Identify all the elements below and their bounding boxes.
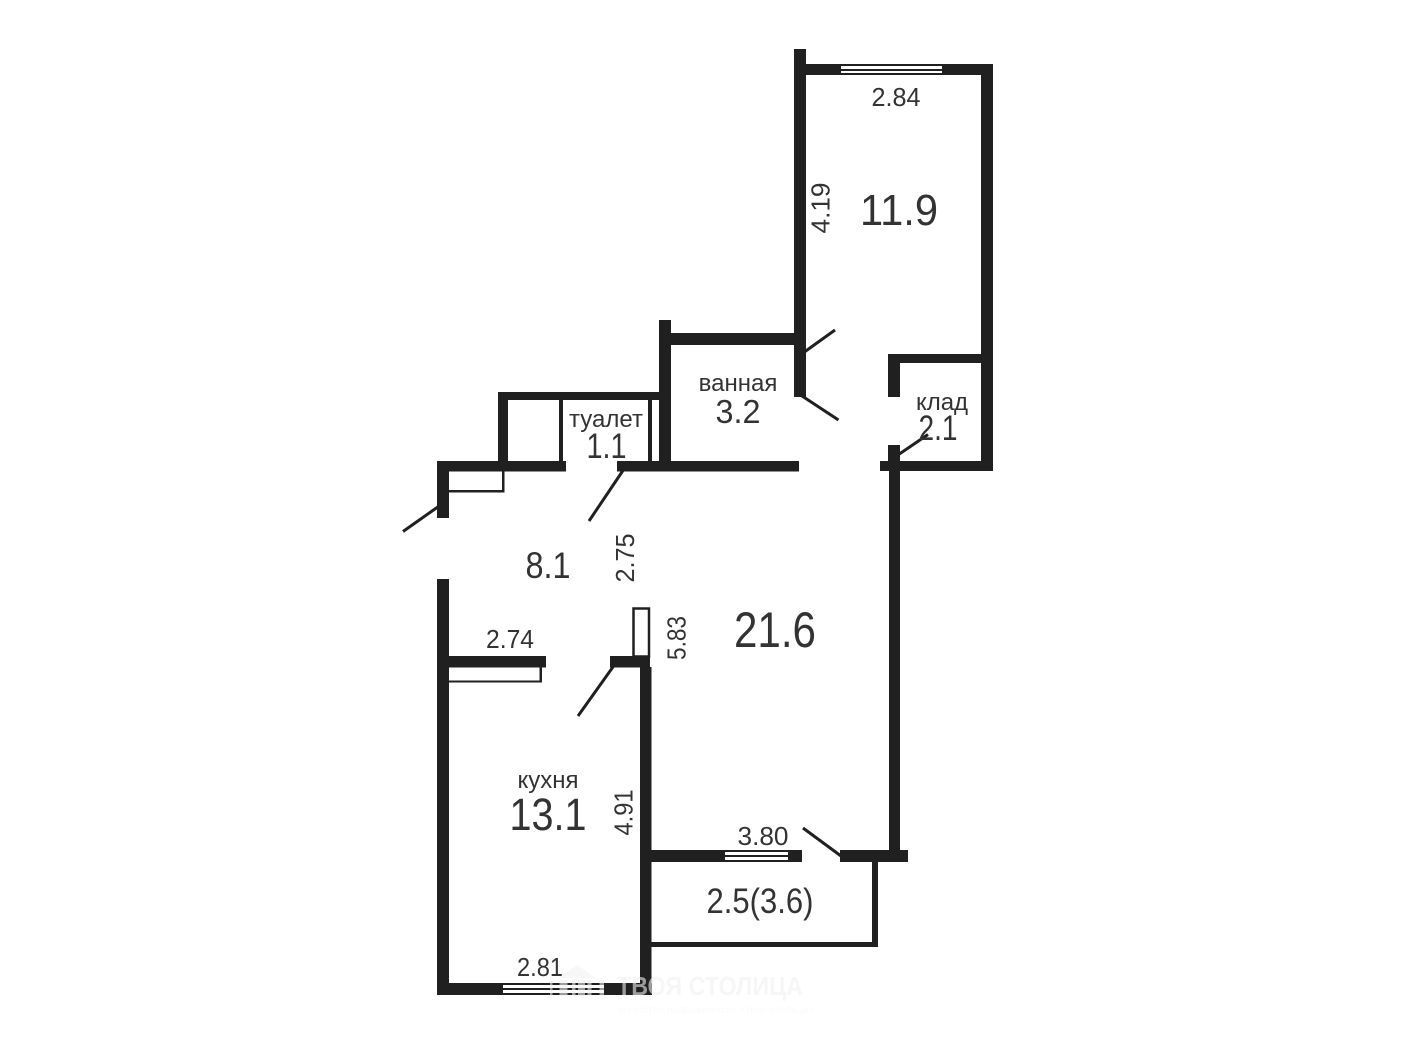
svg-text:1.1: 1.1	[587, 427, 627, 466]
svg-text:8.1: 8.1	[526, 545, 571, 586]
svg-text:2.81: 2.81	[517, 952, 563, 982]
svg-text:21.6: 21.6	[734, 602, 816, 658]
svg-text:ТВОЯ СТОЛИЦА: ТВОЯ СТОЛИЦА	[617, 973, 803, 1001]
svg-text:11.9: 11.9	[860, 186, 938, 235]
svg-text:агентство недвижимости «Твоя с: агентство недвижимости «Твоя столица»	[618, 1004, 814, 1016]
svg-text:5.83: 5.83	[661, 616, 691, 660]
svg-text:13.1: 13.1	[510, 789, 587, 840]
svg-text:3.80: 3.80	[738, 821, 789, 851]
svg-text:4.91: 4.91	[608, 790, 638, 836]
svg-text:2.5(3.6): 2.5(3.6)	[707, 882, 814, 921]
svg-text:2.75: 2.75	[610, 534, 640, 583]
svg-text:4.19: 4.19	[806, 183, 836, 234]
svg-text:3.2: 3.2	[716, 393, 761, 430]
svg-text:2.74: 2.74	[486, 624, 534, 654]
svg-text:2.84: 2.84	[872, 82, 921, 112]
svg-text:2.1: 2.1	[919, 409, 958, 448]
